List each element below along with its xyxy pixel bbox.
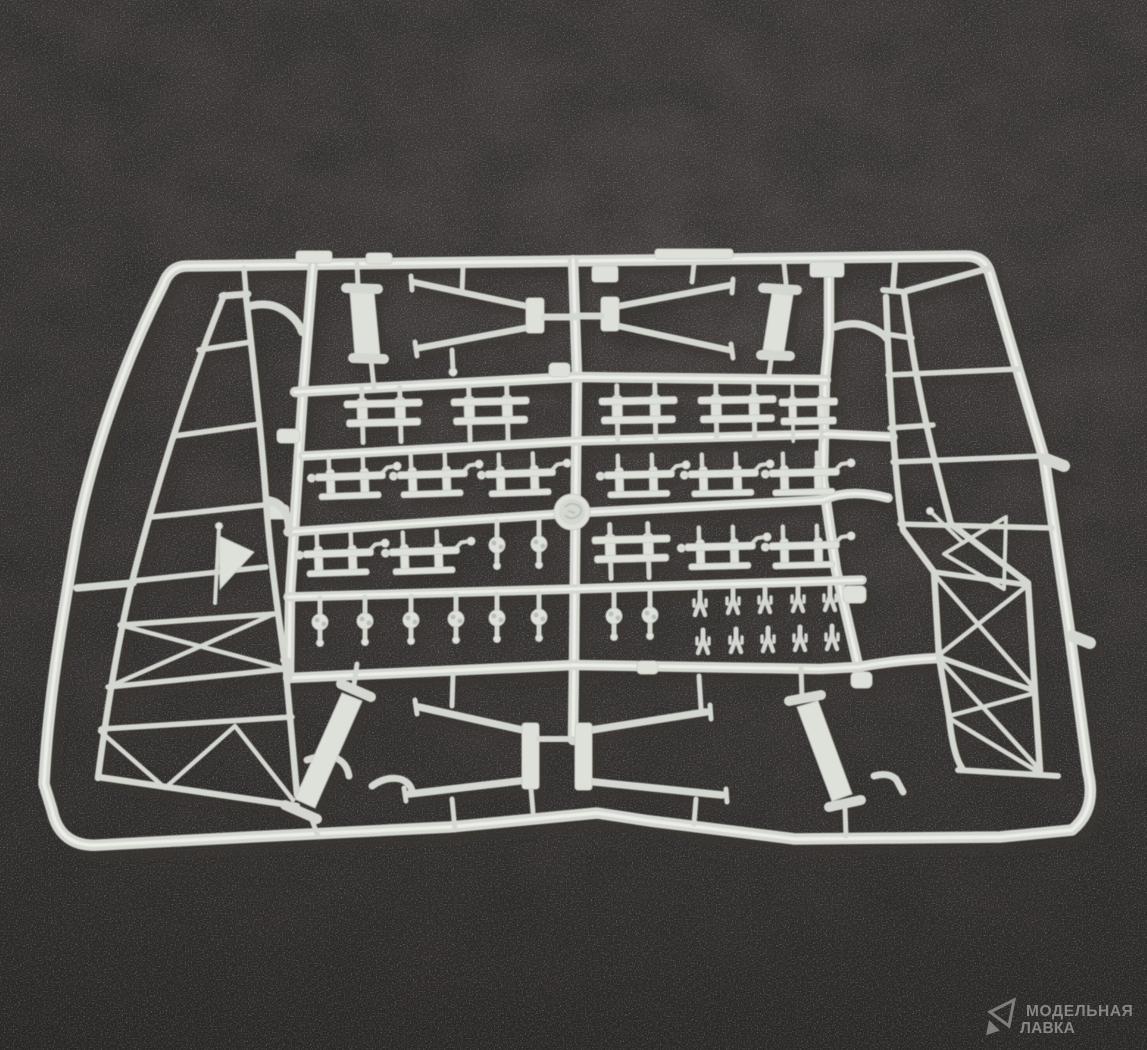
svg-text:МОДЕЛЬНАЯ: МОДЕЛЬНАЯ bbox=[1026, 1003, 1133, 1020]
svg-text:ЛАВКА: ЛАВКА bbox=[1020, 1020, 1075, 1037]
